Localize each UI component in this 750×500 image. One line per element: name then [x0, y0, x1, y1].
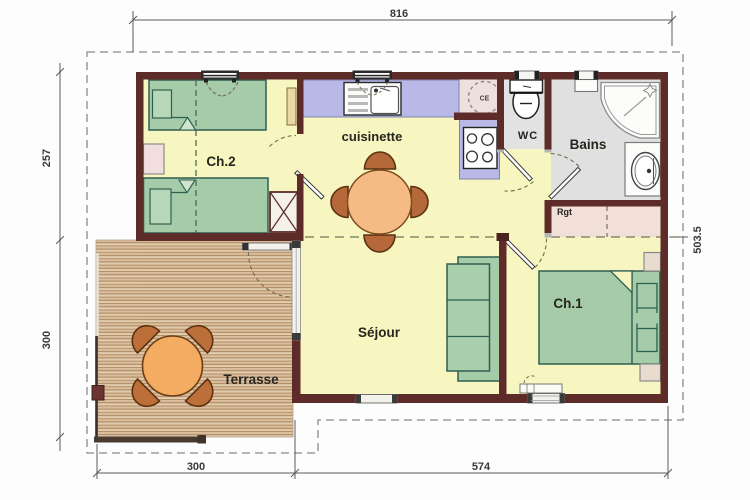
svg-text:Bains: Bains: [570, 137, 607, 152]
svg-text:cuisinette: cuisinette: [342, 129, 403, 144]
svg-text:Ch.2: Ch.2: [206, 154, 235, 169]
svg-text:Rgt: Rgt: [557, 207, 572, 217]
svg-text:WC: WC: [518, 130, 538, 142]
svg-text:300: 300: [187, 461, 205, 473]
svg-text:Ch.1: Ch.1: [553, 296, 583, 311]
svg-text:816: 816: [390, 8, 408, 20]
svg-text:574: 574: [472, 461, 491, 473]
svg-text:503.5: 503.5: [692, 226, 704, 254]
svg-text:CE: CE: [480, 96, 490, 103]
svg-text:300: 300: [41, 331, 53, 349]
svg-text:Séjour: Séjour: [358, 325, 401, 340]
svg-text:257: 257: [41, 149, 53, 167]
svg-text:Terrasse: Terrasse: [223, 372, 279, 387]
